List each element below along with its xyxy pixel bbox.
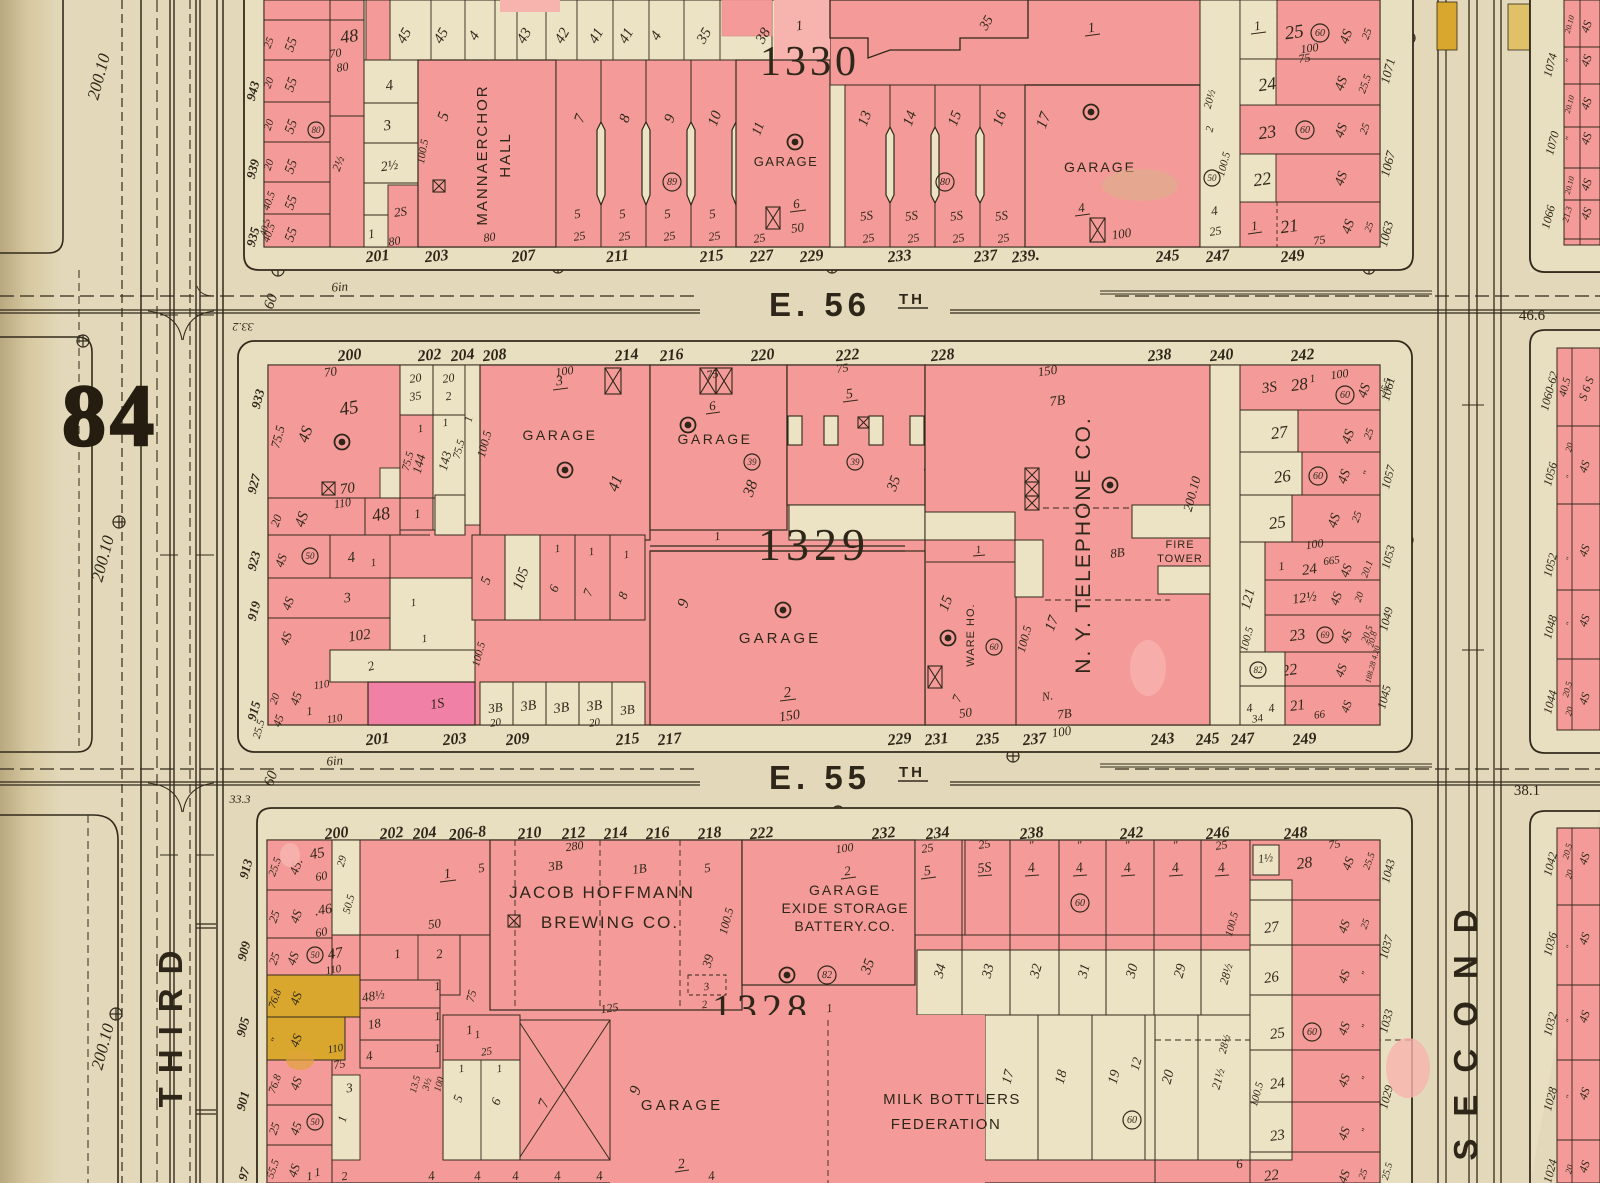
svg-text:237: 237: [1021, 730, 1049, 750]
svg-text:60: 60: [1307, 1027, 1317, 1038]
svg-text:26: 26: [1263, 969, 1281, 987]
svg-text:8B: 8B: [1109, 544, 1125, 561]
svg-text:204: 204: [449, 346, 476, 366]
svg-text:200: 200: [336, 346, 363, 366]
svg-text:TH: TH: [899, 764, 925, 781]
svg-text:5S: 5S: [994, 207, 1009, 224]
svg-text:WARE HO.: WARE HO.: [965, 603, 977, 666]
svg-text:6in: 6in: [326, 752, 344, 768]
svg-text:34: 34: [1250, 712, 1264, 726]
svg-text:203: 203: [441, 730, 468, 750]
svg-text:233: 233: [886, 247, 913, 267]
svg-text:23: 23: [1257, 121, 1278, 143]
svg-text:216: 216: [658, 346, 685, 366]
svg-text:110: 110: [326, 712, 344, 726]
svg-text:48: 48: [370, 503, 391, 526]
svg-text:50: 50: [306, 551, 316, 561]
svg-text:70: 70: [329, 45, 343, 61]
svg-text:89: 89: [667, 177, 677, 188]
svg-text:GARAGE: GARAGE: [641, 1097, 723, 1114]
svg-text:7B: 7B: [1056, 705, 1072, 722]
svg-text:231: 231: [923, 730, 950, 750]
svg-text:665: 665: [1323, 554, 1342, 568]
svg-text:25: 25: [921, 840, 935, 856]
svg-text:23: 23: [1269, 1127, 1286, 1145]
svg-text:243: 243: [1149, 730, 1176, 750]
svg-text:33.3: 33.3: [229, 792, 251, 806]
svg-text:21: 21: [1289, 697, 1306, 715]
svg-text:33.2: 33.2: [233, 320, 255, 334]
svg-text:227: 227: [748, 247, 776, 267]
svg-text:35: 35: [408, 388, 423, 404]
svg-text:237: 237: [972, 247, 1000, 267]
svg-text:82: 82: [1254, 665, 1264, 675]
svg-text:20: 20: [489, 716, 502, 729]
svg-text:1½: 1½: [1257, 850, 1274, 866]
svg-text:60: 60: [314, 868, 328, 884]
svg-text:202: 202: [416, 346, 443, 366]
svg-text:7B: 7B: [1049, 393, 1067, 410]
svg-text:25: 25: [1269, 1025, 1287, 1043]
svg-text:214: 214: [613, 346, 640, 366]
svg-text:3B: 3B: [552, 700, 571, 717]
svg-text:5S: 5S: [904, 207, 919, 224]
svg-text:2½: 2½: [380, 158, 400, 175]
svg-text:25: 25: [480, 1045, 493, 1058]
svg-text:25: 25: [663, 228, 677, 244]
svg-text:80: 80: [940, 177, 950, 188]
svg-text:1329: 1329: [758, 519, 870, 570]
svg-text:20: 20: [442, 370, 456, 386]
svg-text:249: 249: [1291, 730, 1318, 750]
svg-text:102: 102: [347, 626, 372, 645]
svg-text:BATTERY.CO.: BATTERY.CO.: [794, 918, 895, 934]
svg-text:211: 211: [604, 247, 630, 266]
svg-text:1B: 1B: [631, 860, 647, 877]
svg-text:E. 55: E. 55: [769, 759, 871, 796]
svg-text:SECOND: SECOND: [1447, 887, 1484, 1160]
svg-text:247: 247: [1229, 730, 1257, 750]
svg-text:50: 50: [311, 1117, 321, 1127]
svg-text:150: 150: [1037, 362, 1059, 380]
svg-text:25: 25: [952, 230, 966, 246]
svg-text:45: 45: [338, 397, 360, 421]
svg-text:50: 50: [958, 704, 973, 721]
svg-text:110: 110: [333, 495, 352, 511]
svg-text:GARAGE: GARAGE: [739, 630, 821, 647]
svg-text:39: 39: [747, 457, 758, 467]
svg-text:.46: .46: [313, 902, 333, 920]
svg-text:3B: 3B: [618, 701, 635, 718]
svg-text:75: 75: [332, 1056, 346, 1072]
svg-text:215: 215: [698, 247, 725, 267]
svg-text:20: 20: [588, 716, 601, 729]
svg-text:2S: 2S: [393, 203, 408, 220]
svg-text:28: 28: [1289, 374, 1309, 395]
svg-text:80: 80: [388, 233, 402, 249]
svg-text:125: 125: [600, 1000, 620, 1016]
svg-text:24: 24: [1257, 73, 1278, 95]
svg-text:75: 75: [1328, 836, 1342, 852]
svg-text:TH: TH: [899, 291, 925, 308]
svg-text:22: 22: [1263, 1167, 1281, 1183]
svg-text:3B: 3B: [585, 698, 604, 715]
svg-text:THIRD: THIRD: [152, 937, 189, 1108]
svg-text:5S: 5S: [859, 207, 874, 224]
svg-text:100: 100: [1305, 536, 1325, 552]
svg-text:25: 25: [1283, 21, 1305, 44]
svg-text:209: 209: [504, 730, 531, 750]
svg-text:3B: 3B: [546, 857, 563, 874]
svg-text:28: 28: [1295, 854, 1313, 873]
svg-text:25: 25: [907, 230, 921, 246]
svg-text:25: 25: [1215, 837, 1229, 853]
svg-text:50: 50: [427, 915, 442, 932]
svg-text:217: 217: [656, 730, 684, 750]
svg-text:1330: 1330: [760, 39, 860, 85]
svg-text:GARAGE: GARAGE: [754, 154, 819, 169]
svg-text:80: 80: [336, 59, 350, 75]
svg-text:82: 82: [822, 970, 832, 981]
svg-text:FEDERATION: FEDERATION: [891, 1116, 1002, 1133]
svg-text:GARAGE: GARAGE: [523, 427, 598, 443]
svg-text:39: 39: [850, 457, 861, 467]
svg-text:100: 100: [1111, 225, 1133, 243]
svg-text:EXIDE STORAGE: EXIDE STORAGE: [781, 900, 908, 916]
svg-text:5S: 5S: [949, 207, 964, 224]
svg-text:24: 24: [1301, 561, 1319, 579]
svg-text:239.: 239.: [1010, 247, 1041, 267]
svg-text:50: 50: [311, 950, 321, 960]
svg-text:25: 25: [997, 230, 1011, 246]
svg-text:249: 249: [1279, 247, 1306, 267]
svg-text:BREWING CO.: BREWING CO.: [541, 913, 679, 932]
svg-text:245: 245: [1154, 247, 1181, 267]
svg-text:3B: 3B: [519, 698, 538, 715]
svg-text:N. Y. TELEPHONE CO.: N. Y. TELEPHONE CO.: [1072, 416, 1095, 673]
svg-text:HALL: HALL: [497, 132, 514, 178]
svg-text:228: 228: [929, 346, 956, 366]
svg-text:50: 50: [1208, 173, 1218, 183]
svg-text:280: 280: [565, 838, 585, 854]
svg-text:220: 220: [749, 346, 776, 366]
svg-text:38.1: 38.1: [1514, 783, 1540, 799]
svg-text:N.: N.: [1040, 688, 1054, 704]
svg-text:1S: 1S: [429, 696, 445, 713]
svg-text:21: 21: [1279, 215, 1300, 237]
svg-text:E. 56: E. 56: [769, 286, 871, 323]
svg-text:100: 100: [555, 363, 575, 379]
svg-text:GARAGE: GARAGE: [678, 431, 753, 447]
svg-text:75: 75: [1298, 50, 1312, 66]
svg-text:60: 60: [990, 642, 1000, 652]
svg-text:48: 48: [339, 25, 360, 47]
svg-text:3B: 3B: [486, 699, 503, 716]
svg-text:MILK BOTTLERS: MILK BOTTLERS: [883, 1091, 1021, 1108]
svg-text:25: 25: [753, 230, 767, 246]
svg-text:150: 150: [778, 708, 801, 726]
svg-text:GARAGE: GARAGE: [809, 882, 881, 898]
svg-text:100: 100: [1330, 366, 1350, 382]
svg-text:25: 25: [1267, 512, 1286, 533]
svg-text:25: 25: [862, 230, 876, 246]
svg-text:75: 75: [1313, 232, 1327, 248]
svg-text:25: 25: [708, 228, 722, 244]
svg-text:25: 25: [573, 228, 587, 244]
svg-text:247: 247: [1204, 247, 1232, 267]
svg-text:203: 203: [423, 247, 450, 267]
svg-text:JACOB HOFFMANN: JACOB HOFFMANN: [509, 883, 695, 902]
svg-text:26: 26: [1272, 466, 1292, 487]
svg-text:100: 100: [835, 840, 855, 856]
svg-text:235: 235: [974, 730, 1001, 750]
svg-text:TOWER: TOWER: [1157, 553, 1203, 565]
svg-text:242: 242: [1118, 824, 1145, 844]
svg-text:238: 238: [1146, 346, 1173, 366]
svg-text:229: 229: [798, 247, 825, 267]
svg-text:MANNAERCHOR: MANNAERCHOR: [474, 84, 491, 225]
svg-text:60: 60: [1340, 390, 1350, 401]
svg-text:201: 201: [364, 247, 391, 267]
svg-text:20: 20: [409, 370, 423, 386]
svg-text:6in: 6in: [331, 278, 349, 294]
svg-text:207: 207: [510, 247, 538, 267]
svg-text:229: 229: [886, 730, 913, 750]
svg-text:60: 60: [1127, 1115, 1137, 1126]
svg-text:FIRE: FIRE: [1165, 539, 1194, 551]
svg-text:75: 75: [836, 360, 850, 376]
svg-text:201: 201: [364, 730, 391, 750]
svg-text:69: 69: [1321, 630, 1331, 640]
svg-text:208: 208: [481, 346, 508, 366]
svg-text:242: 242: [1289, 346, 1316, 366]
svg-text:3S: 3S: [1260, 379, 1279, 397]
svg-text:84: 84: [62, 368, 158, 465]
svg-text:25: 25: [978, 836, 992, 852]
svg-text:110: 110: [313, 678, 331, 692]
svg-text:80: 80: [312, 125, 322, 135]
svg-text:25: 25: [1209, 223, 1223, 239]
svg-text:50: 50: [790, 219, 805, 236]
svg-text:80: 80: [483, 229, 497, 245]
svg-text:60: 60: [1313, 471, 1323, 482]
svg-text:100: 100: [1051, 723, 1073, 741]
svg-text:60: 60: [1075, 898, 1085, 909]
svg-text:25: 25: [618, 228, 632, 244]
svg-text:66: 66: [1313, 708, 1326, 721]
svg-text:46.6: 46.6: [1519, 308, 1546, 324]
svg-text:24: 24: [1269, 1075, 1287, 1093]
svg-text:245: 245: [1194, 730, 1221, 750]
svg-text:70: 70: [323, 363, 338, 380]
svg-text:240: 240: [1208, 346, 1235, 366]
svg-text:5S: 5S: [977, 860, 993, 877]
svg-text:22: 22: [1252, 168, 1273, 190]
svg-text:60: 60: [314, 924, 328, 940]
svg-text:60: 60: [1315, 28, 1325, 39]
svg-text:60: 60: [1300, 125, 1310, 136]
svg-text:215: 215: [614, 730, 641, 750]
svg-text:23: 23: [1288, 626, 1306, 645]
